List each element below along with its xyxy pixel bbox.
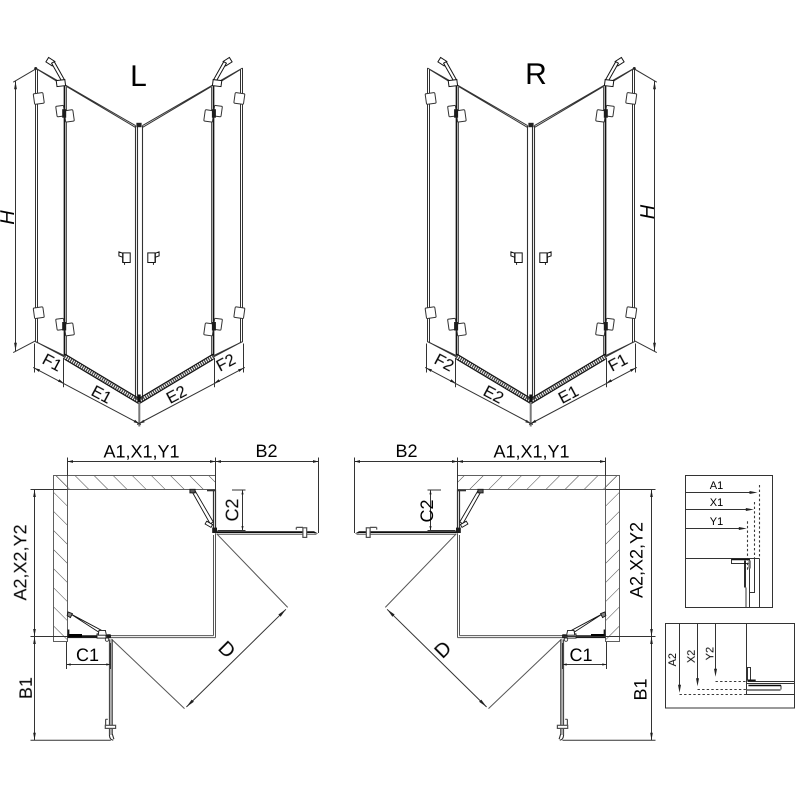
svg-text:A1: A1 (710, 480, 723, 492)
svg-text:X1: X1 (710, 497, 723, 509)
svg-text:X2: X2 (686, 650, 698, 663)
svg-text:C1: C1 (569, 645, 592, 665)
svg-text:C2: C2 (222, 498, 242, 521)
svg-text:R: R (525, 58, 547, 91)
svg-text:Y1: Y1 (710, 516, 723, 528)
svg-text:H: H (637, 204, 659, 219)
svg-text:Y2: Y2 (705, 647, 717, 660)
svg-text:C2: C2 (417, 499, 437, 522)
svg-text:L: L (130, 60, 147, 93)
svg-text:B2: B2 (255, 441, 277, 461)
svg-text:A2: A2 (667, 653, 679, 666)
svg-text:A2,X2,Y2: A2,X2,Y2 (10, 524, 30, 600)
svg-text:A1,X1,Y1: A1,X1,Y1 (493, 441, 569, 461)
svg-text:A1,X1,Y1: A1,X1,Y1 (103, 441, 179, 461)
svg-text:C1: C1 (76, 645, 99, 665)
svg-text:B2: B2 (395, 441, 417, 461)
svg-text:A2,X2,Y2: A2,X2,Y2 (627, 522, 647, 598)
svg-text:B1: B1 (16, 677, 36, 699)
svg-text:H: H (0, 210, 19, 225)
svg-text:B1: B1 (631, 678, 651, 700)
